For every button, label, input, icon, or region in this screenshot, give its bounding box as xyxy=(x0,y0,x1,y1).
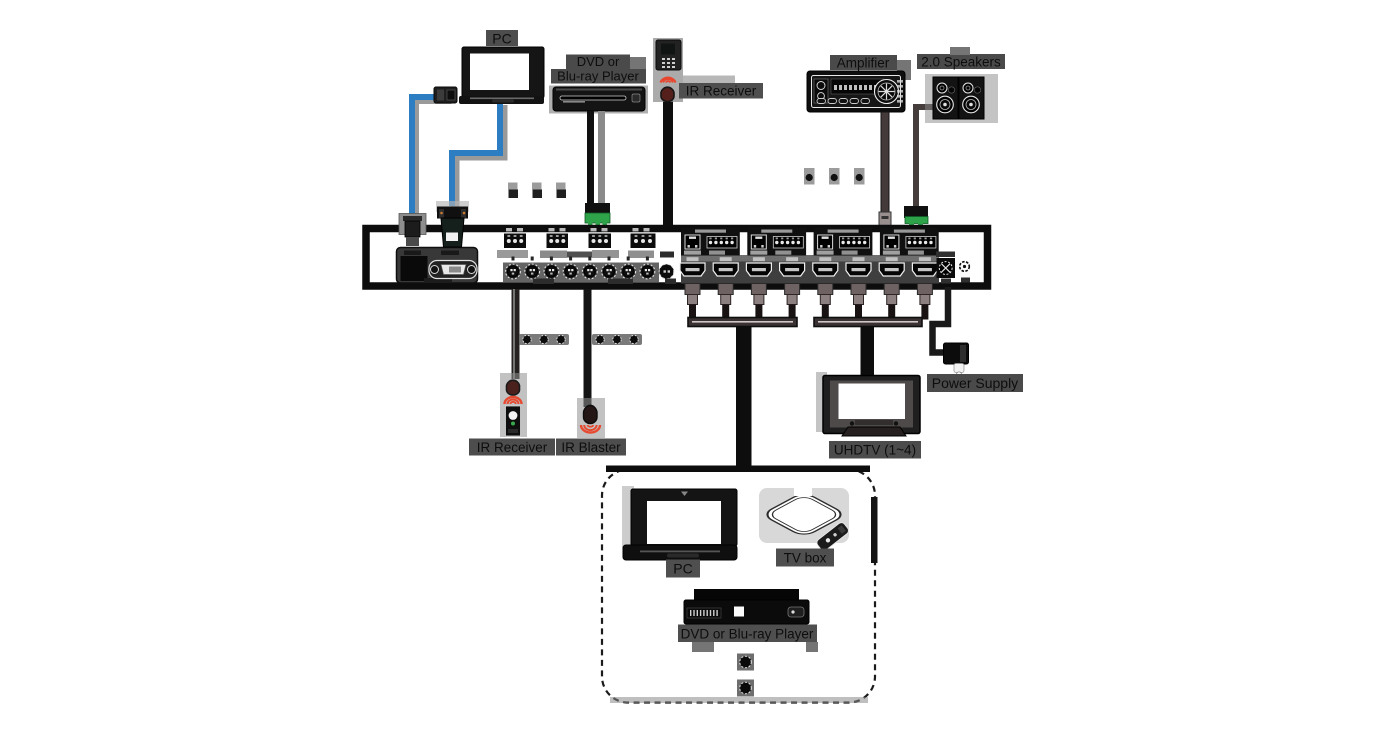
svg-text:DVD or Blu-ray Player: DVD or Blu-ray Player xyxy=(681,627,814,642)
svg-text:Blu-ray Player: Blu-ray Player xyxy=(557,69,639,84)
svg-text:Power Supply: Power Supply xyxy=(932,375,1018,391)
svg-text:IR Receiver: IR Receiver xyxy=(477,440,548,455)
svg-text:UHDTV (1~4): UHDTV (1~4) xyxy=(834,443,916,458)
svg-text:IR Blaster: IR Blaster xyxy=(561,440,621,455)
svg-text:Amplifier: Amplifier xyxy=(837,56,890,71)
svg-text:PC: PC xyxy=(492,31,511,47)
svg-text:IR Receiver: IR Receiver xyxy=(686,84,757,99)
svg-text:TV box: TV box xyxy=(784,551,827,566)
svg-text:DVD or: DVD or xyxy=(577,54,620,69)
svg-text:2.0 Speakers: 2.0 Speakers xyxy=(921,55,1001,70)
svg-text:PC: PC xyxy=(673,561,692,577)
